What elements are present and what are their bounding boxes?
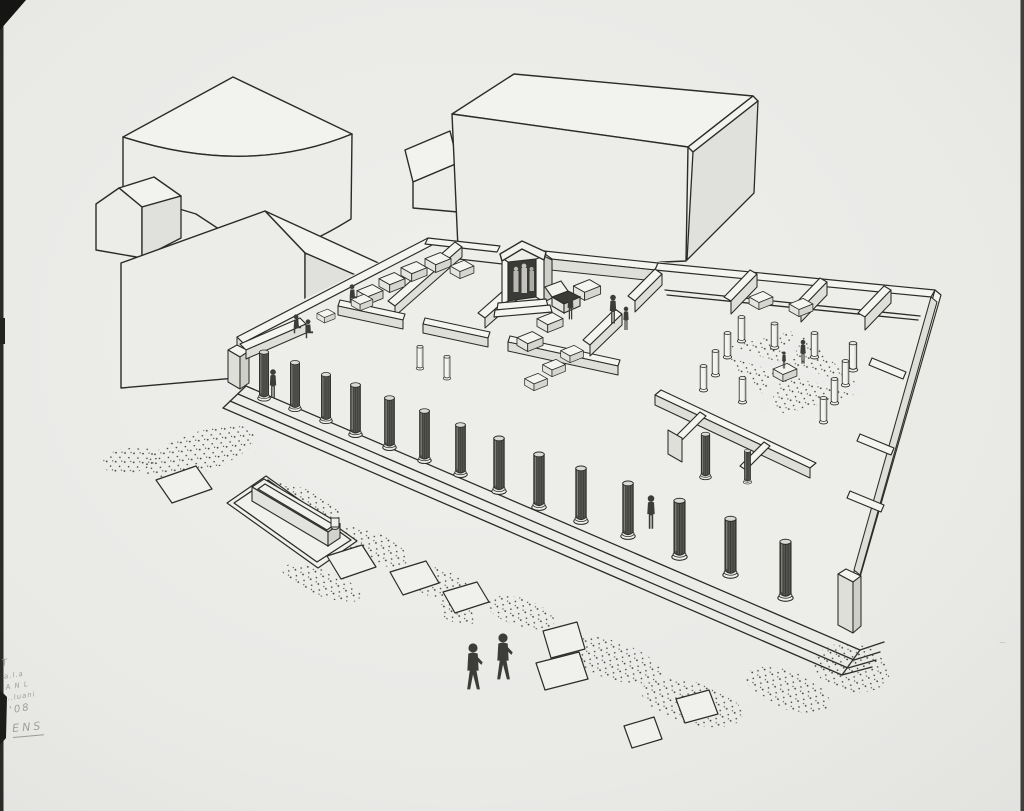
colonnade-column (672, 498, 687, 560)
courtyard-column-stump (699, 365, 707, 392)
cult-statues (514, 264, 535, 293)
inner-column-stump (443, 355, 451, 380)
handwritten-marginalia: T a.l.a A N L ..luani '08 ENS (1, 647, 83, 739)
film-edge-left (0, 0, 4, 811)
courtyard-column-stump (819, 397, 827, 424)
colonnade-column (383, 396, 397, 451)
edge-blemish (0, 690, 7, 745)
colonnade-column (778, 539, 793, 601)
courtyard-column-stump (830, 378, 838, 405)
colonnade-column (320, 373, 333, 424)
colonnade-column (621, 481, 635, 539)
courtyard-column-stump (810, 332, 818, 359)
courtyard-column-stump (841, 360, 849, 387)
courtyard-column-stump (848, 342, 857, 373)
courtyard-column-stump (723, 332, 731, 359)
colonnade-column (492, 436, 506, 494)
scanned-drawing-page: T a.l.a A N L ..luani '08 ENS ~ (0, 0, 1024, 811)
reconstruction-drawing (0, 0, 1024, 811)
colonnade-column (418, 409, 432, 464)
courtyard-column-stump (711, 350, 719, 377)
inner-dark-column (743, 449, 752, 484)
courtyard-column-stump (738, 377, 746, 404)
colonnade-column (574, 466, 588, 524)
corner-pillar (838, 569, 861, 633)
colonnade-column (289, 361, 302, 412)
colonnade-column (349, 383, 363, 438)
courtyard-column-stump (737, 316, 745, 343)
colonnade-column (532, 452, 546, 510)
colonnade-column (723, 516, 738, 578)
edge-blemish (0, 318, 5, 344)
inner-column-stump (416, 345, 424, 370)
film-edge-right (1021, 0, 1024, 811)
colonnade-column (454, 423, 468, 478)
right-edge-mark: ~ (999, 638, 1006, 647)
courtyard-column-stump (770, 322, 778, 349)
inner-dark-column (700, 432, 712, 479)
colonnade-column (258, 350, 271, 401)
margin-note-line: ENS (11, 717, 44, 738)
